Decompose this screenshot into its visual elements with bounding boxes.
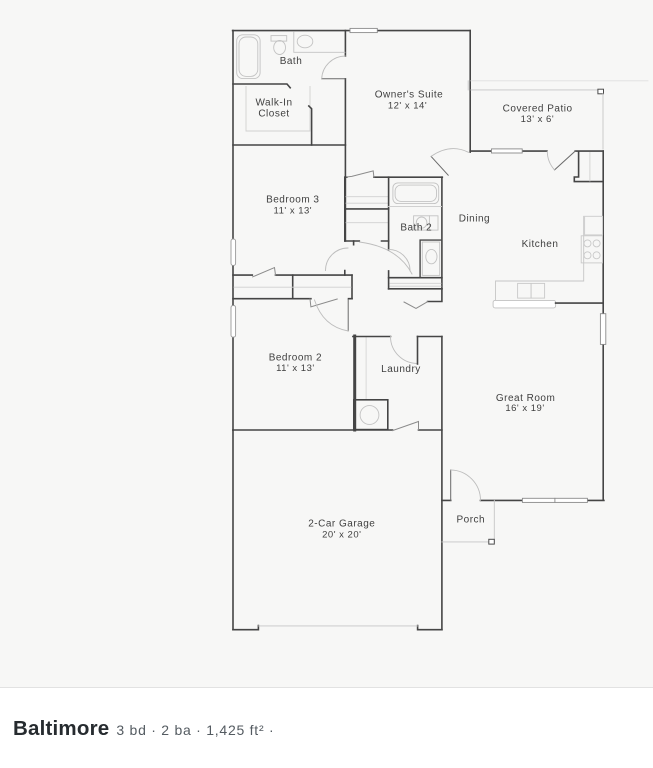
- svg-text:16' x 19': 16' x 19': [505, 403, 544, 414]
- svg-text:Bath 2: Bath 2: [400, 222, 432, 233]
- svg-text:Dining: Dining: [459, 214, 490, 225]
- svg-text:11' x 13': 11' x 13': [276, 363, 315, 374]
- svg-text:Closet: Closet: [258, 108, 289, 119]
- svg-text:Bath: Bath: [280, 56, 303, 67]
- svg-text:13' x 6': 13' x 6': [521, 114, 555, 125]
- svg-text:20' x 20': 20' x 20': [322, 529, 361, 540]
- svg-text:Kitchen: Kitchen: [522, 239, 559, 250]
- svg-text:Bedroom 2: Bedroom 2: [269, 353, 322, 364]
- svg-text:Bedroom 3: Bedroom 3: [266, 195, 319, 206]
- svg-text:Walk-In: Walk-In: [255, 97, 292, 108]
- svg-text:2-Car Garage: 2-Car Garage: [308, 519, 375, 530]
- svg-text:Porch: Porch: [456, 514, 485, 525]
- svg-text:Laundry: Laundry: [381, 364, 421, 375]
- svg-text:11' x 13': 11' x 13': [274, 205, 313, 216]
- svg-text:12' x 14': 12' x 14': [388, 100, 427, 111]
- svg-text:Owner's Suite: Owner's Suite: [375, 90, 443, 101]
- svg-text:Great Room: Great Room: [496, 393, 555, 404]
